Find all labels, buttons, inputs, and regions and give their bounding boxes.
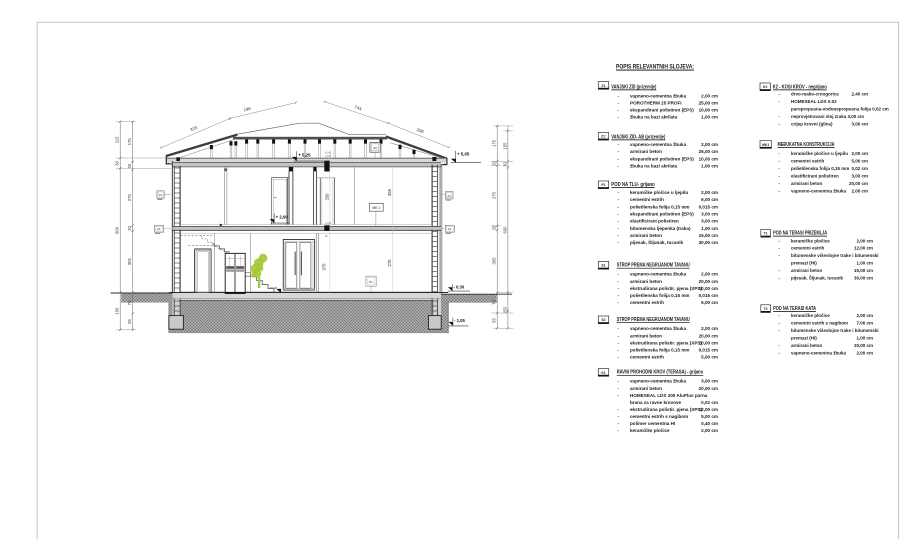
svg-text:20,00 cm: 20,00 cm bbox=[699, 279, 718, 284]
svg-text:+5,41: +5,41 bbox=[325, 151, 332, 155]
svg-text:-: - bbox=[779, 343, 781, 348]
svg-text:cementni estrih: cementni estrih bbox=[791, 158, 825, 163]
svg-text:25,00 cm: 25,00 cm bbox=[699, 100, 718, 105]
svg-text:armirani beton: armirani beton bbox=[630, 279, 662, 284]
svg-text:-: - bbox=[618, 197, 620, 202]
svg-text:MK1: MK1 bbox=[762, 143, 769, 147]
svg-text:-: - bbox=[618, 279, 620, 284]
svg-text:+2,66: +2,66 bbox=[325, 221, 332, 225]
svg-text:polietilenska folija 0,15 mm: polietilenska folija 0,15 mm bbox=[630, 347, 690, 352]
svg-text:20: 20 bbox=[325, 234, 328, 238]
svg-text:STROP PREMA NEGRIJANOM TAVANU: STROP PREMA NEGRIJANOM TAVANU bbox=[617, 317, 690, 323]
svg-text:brana za ravne krovove: brana za ravne krovove bbox=[630, 400, 682, 405]
svg-text:-: - bbox=[618, 115, 620, 120]
svg-text:-: - bbox=[618, 340, 620, 345]
svg-text:3,00 cm: 3,00 cm bbox=[701, 219, 718, 224]
svg-text:-: - bbox=[779, 151, 781, 156]
svg-text:0,015 cm: 0,015 cm bbox=[699, 204, 718, 209]
svg-text:K2: K2 bbox=[763, 85, 767, 89]
svg-text:-: - bbox=[618, 226, 620, 231]
svg-text:keramičke pločice: keramičke pločice bbox=[791, 313, 830, 318]
svg-text:-: - bbox=[779, 99, 781, 104]
svg-text:-: - bbox=[618, 212, 620, 217]
svg-text:2,00 cm: 2,00 cm bbox=[701, 190, 718, 195]
svg-text:pijesak, Šljunak, tucanik: pijesak, Šljunak, tucanik bbox=[791, 273, 844, 280]
svg-text:Z1: Z1 bbox=[448, 194, 452, 198]
svg-text:55: 55 bbox=[492, 318, 497, 323]
svg-text:2,40 cm: 2,40 cm bbox=[851, 92, 868, 97]
svg-text:VANJSKI ZID (prizemlje): VANJSKI ZID (prizemlje) bbox=[611, 84, 656, 90]
svg-text:315: 315 bbox=[189, 125, 198, 133]
svg-text:±0,00: ±0,00 bbox=[270, 286, 278, 290]
svg-text:cementni estrih: cementni estrih bbox=[791, 246, 825, 251]
svg-text:-: - bbox=[618, 272, 620, 277]
svg-text:0,02 cm: 0,02 cm bbox=[851, 166, 868, 171]
svg-text:1,00 cm: 1,00 cm bbox=[701, 226, 718, 231]
svg-text:armirani beton: armirani beton bbox=[791, 268, 823, 273]
svg-text:1,00 cm: 1,00 cm bbox=[856, 261, 873, 266]
svg-text:Z1': Z1' bbox=[601, 135, 606, 139]
svg-text:30: 30 bbox=[114, 160, 119, 165]
svg-text:5,00 cm: 5,00 cm bbox=[851, 158, 868, 163]
svg-text:ekstrudirana polistir. pjena (: ekstrudirana polistir. pjena (XPS) bbox=[630, 340, 702, 345]
svg-text:-: - bbox=[618, 190, 620, 195]
svg-text:vapneno-cementna žbuka: vapneno-cementna žbuka bbox=[791, 188, 847, 193]
svg-text:armirani beton: armirani beton bbox=[791, 343, 823, 348]
svg-text:2,00 cm: 2,00 cm bbox=[851, 151, 868, 156]
svg-text:premazi (HI): premazi (HI) bbox=[791, 261, 817, 266]
svg-text:-: - bbox=[779, 173, 781, 178]
svg-text:-: - bbox=[618, 379, 620, 384]
svg-text:2,00 cm: 2,00 cm bbox=[856, 351, 873, 356]
svg-text:2,00 cm: 2,00 cm bbox=[856, 313, 873, 318]
svg-text:115: 115 bbox=[114, 136, 119, 143]
svg-text:Z1: Z1 bbox=[159, 193, 163, 197]
svg-text:2,00 cm: 2,00 cm bbox=[701, 142, 718, 147]
svg-text:270: 270 bbox=[387, 259, 392, 267]
svg-text:600: 600 bbox=[502, 226, 507, 234]
svg-text:POPIS RELEVANTNIH SLOJEVA:: POPIS RELEVANTNIH SLOJEVA: bbox=[616, 64, 694, 70]
svg-text:15,00 cm: 15,00 cm bbox=[854, 268, 873, 273]
svg-text:-: - bbox=[618, 219, 620, 224]
svg-text:polietilenska folija 0,15 mm: polietilenska folija 0,15 mm bbox=[791, 166, 849, 171]
svg-text:ekstrudirana polistir. pjena (: ekstrudirana polistir. pjena (XPS) bbox=[630, 286, 702, 291]
svg-text:-: - bbox=[779, 253, 781, 258]
svg-text:744: 744 bbox=[354, 104, 363, 111]
svg-text:2,00 cm: 2,00 cm bbox=[856, 238, 873, 243]
svg-text:crijep krovni (glina): crijep krovni (glina) bbox=[791, 122, 833, 127]
svg-text:155: 155 bbox=[502, 142, 507, 150]
svg-text:-: - bbox=[618, 93, 620, 98]
svg-text:keramičke pločice: keramičke pločice bbox=[791, 238, 830, 243]
svg-text:-: - bbox=[779, 321, 781, 326]
svg-text:-: - bbox=[618, 393, 620, 398]
svg-text:+5,21: +5,21 bbox=[325, 154, 332, 158]
svg-text:-: - bbox=[618, 326, 620, 331]
svg-text:-: - bbox=[618, 233, 620, 238]
svg-text:cementni estrih: cementni estrih bbox=[630, 197, 664, 202]
svg-text:0,015 cm: 0,015 cm bbox=[699, 347, 718, 352]
svg-text:30: 30 bbox=[502, 162, 507, 167]
svg-text:S2: S2 bbox=[373, 146, 377, 150]
svg-text:-: - bbox=[618, 163, 620, 168]
svg-text:P1: P1 bbox=[601, 183, 605, 187]
svg-text:VANJSKI ZID- AB (prizemlje): VANJSKI ZID- AB (prizemlje) bbox=[611, 134, 665, 140]
svg-text:-: - bbox=[779, 158, 781, 163]
svg-text:375: 375 bbox=[321, 263, 326, 271]
svg-text:3,00 cm: 3,00 cm bbox=[701, 379, 718, 384]
svg-text:0,015 cm: 0,015 cm bbox=[699, 293, 718, 298]
svg-text:5,00 cm: 5,00 cm bbox=[701, 414, 718, 419]
svg-text:70: 70 bbox=[492, 300, 497, 305]
svg-text:7,00 cm: 7,00 cm bbox=[856, 321, 873, 326]
svg-text:1,00 cm: 1,00 cm bbox=[701, 115, 718, 120]
svg-text:6,00 cm: 6,00 cm bbox=[701, 197, 718, 202]
svg-text:vapneno-cementna žbuka: vapneno-cementna žbuka bbox=[630, 326, 687, 331]
svg-text:armirani beton: armirani beton bbox=[791, 181, 823, 186]
svg-text:polimer cementna HI: polimer cementna HI bbox=[630, 421, 675, 426]
svg-text:vapneno-cementna žbuka: vapneno-cementna žbuka bbox=[630, 142, 687, 147]
svg-text:-: - bbox=[779, 275, 781, 280]
svg-text:600: 600 bbox=[114, 226, 119, 234]
svg-text:20,00 cm: 20,00 cm bbox=[849, 181, 868, 186]
svg-text:-: - bbox=[779, 313, 781, 318]
svg-text:2,00 cm: 2,00 cm bbox=[701, 326, 718, 331]
svg-text:2,00 cm: 2,00 cm bbox=[701, 428, 718, 433]
svg-text:-: - bbox=[779, 328, 781, 333]
svg-text:55: 55 bbox=[127, 319, 132, 324]
svg-text:305: 305 bbox=[492, 257, 497, 265]
svg-text:ekspandirani polistiren (EPS): ekspandirani polistiren (EPS) bbox=[630, 212, 694, 217]
svg-text:P1: P1 bbox=[369, 280, 373, 284]
svg-text:1,00 cm: 1,00 cm bbox=[701, 163, 718, 168]
svg-text:cementni estrih s nagibom: cementni estrih s nagibom bbox=[791, 321, 848, 326]
svg-text:10,00 cm: 10,00 cm bbox=[699, 286, 718, 291]
svg-text:vapneno-cementna žbuka: vapneno-cementna žbuka bbox=[630, 379, 687, 384]
svg-text:žbuka na bazi akrilata: žbuka na bazi akrilata bbox=[630, 115, 678, 120]
svg-text:3,00 cm: 3,00 cm bbox=[851, 122, 868, 127]
svg-text:175: 175 bbox=[127, 138, 132, 146]
svg-text:-: - bbox=[618, 293, 620, 298]
svg-text:-: - bbox=[779, 181, 781, 186]
svg-text:-: - bbox=[618, 240, 620, 245]
svg-text:0,02 cm: 0,02 cm bbox=[701, 400, 718, 405]
svg-text:armirani beton: armirani beton bbox=[630, 333, 662, 338]
svg-text:+ 5,05: + 5,05 bbox=[457, 152, 470, 157]
svg-text:365: 365 bbox=[387, 188, 392, 196]
svg-text:keramičke pločice u ljepilu: keramičke pločice u ljepilu bbox=[791, 151, 848, 156]
svg-text:armirani beton: armirani beton bbox=[630, 386, 662, 391]
svg-text:-: - bbox=[618, 156, 620, 161]
svg-text:cementni estrih s nagibom: cementni estrih s nagibom bbox=[630, 414, 688, 419]
svg-text:150: 150 bbox=[114, 307, 119, 315]
svg-text:RAVNI PROHODNI KROV (TERASA) -: RAVNI PROHODNI KROV (TERASA) - grijano bbox=[617, 370, 704, 376]
svg-text:3,00 cm: 3,00 cm bbox=[851, 173, 868, 178]
svg-text:-: - bbox=[618, 149, 620, 154]
svg-text:bitumenske višeslojne trake i: bitumenske višeslojne trake i bitumenski bbox=[791, 253, 879, 258]
svg-text:Z1: Z1 bbox=[602, 84, 606, 88]
svg-text:žbuka na bazi akrilata: žbuka na bazi akrilata bbox=[630, 163, 678, 168]
svg-text:12,00 cm: 12,00 cm bbox=[699, 407, 718, 412]
svg-text:275: 275 bbox=[492, 191, 497, 199]
svg-text:2,00 cm: 2,00 cm bbox=[701, 272, 718, 277]
svg-text:-: - bbox=[779, 122, 781, 127]
svg-text:0,40 cm: 0,40 cm bbox=[701, 421, 718, 426]
svg-text:cementni estrih: cementni estrih bbox=[630, 300, 664, 305]
svg-text:-: - bbox=[618, 286, 620, 291]
svg-text:T2: T2 bbox=[764, 307, 768, 311]
svg-text:-: - bbox=[618, 414, 620, 419]
svg-text:30,00 cm: 30,00 cm bbox=[854, 275, 873, 280]
svg-text:296: 296 bbox=[416, 127, 425, 135]
svg-text:ekspandirani polistiren (EPS): ekspandirani polistiren (EPS) bbox=[630, 156, 694, 161]
svg-text:armirani beton: armirani beton bbox=[630, 233, 662, 238]
svg-text:bitumenska ljepenka (traka): bitumenska ljepenka (traka) bbox=[630, 226, 691, 231]
svg-text:12,00 cm: 12,00 cm bbox=[854, 246, 873, 251]
svg-text:-: - bbox=[618, 407, 620, 412]
svg-text:-: - bbox=[779, 351, 781, 356]
svg-text:30,00 cm: 30,00 cm bbox=[699, 240, 718, 245]
svg-text:-: - bbox=[618, 100, 620, 105]
svg-text:neprovjetravani sloj zraka 3,: neprovjetravani sloj zraka 3,00 cm bbox=[791, 114, 864, 119]
svg-text:-: - bbox=[779, 246, 781, 251]
svg-text:-: - bbox=[779, 166, 781, 171]
svg-text:POD NA TERASI PRIZEMLJA: POD NA TERASI PRIZEMLJA bbox=[773, 231, 827, 237]
svg-text:S1: S1 bbox=[601, 264, 605, 268]
svg-text:polietilenska folija 0,15 mm: polietilenska folija 0,15 mm bbox=[630, 204, 690, 209]
svg-text:drvo-mako-crnogorica: drvo-mako-crnogorica bbox=[791, 92, 839, 97]
svg-text:-: - bbox=[779, 92, 781, 97]
svg-text:Z1': Z1' bbox=[448, 227, 452, 231]
svg-text:-: - bbox=[618, 300, 620, 305]
svg-text:2,00 cm: 2,00 cm bbox=[851, 188, 868, 193]
svg-text:-: - bbox=[779, 268, 781, 273]
svg-text:10,00 cm: 10,00 cm bbox=[699, 108, 718, 113]
svg-text:cementni estrih: cementni estrih bbox=[630, 355, 664, 360]
svg-text:keramičke pločice: keramičke pločice bbox=[630, 428, 670, 433]
svg-text:ekspandirani polistiren (EPS): ekspandirani polistiren (EPS) bbox=[630, 108, 694, 113]
svg-text:-: - bbox=[779, 188, 781, 193]
svg-text:+ 2,90: + 2,90 bbox=[276, 214, 289, 219]
svg-text:20: 20 bbox=[127, 225, 132, 230]
svg-text:keramičke pločice u ljepilu: keramičke pločice u ljepilu bbox=[630, 190, 688, 195]
svg-text:10,00 cm: 10,00 cm bbox=[699, 156, 718, 161]
svg-text:POD NA TERASI KATA: POD NA TERASI KATA bbox=[773, 306, 816, 312]
svg-text:25,00 cm: 25,00 cm bbox=[699, 149, 718, 154]
svg-text:70: 70 bbox=[127, 300, 132, 305]
svg-text:-: - bbox=[618, 204, 620, 209]
svg-text:1,00 cm: 1,00 cm bbox=[856, 336, 873, 341]
svg-text:20,00 cm: 20,00 cm bbox=[699, 333, 718, 338]
svg-text:POD NA TLU- grijano: POD NA TLU- grijano bbox=[611, 182, 655, 188]
svg-text:bitumenske višeslojne trake i: bitumenske višeslojne trake i bitumenski bbox=[791, 328, 879, 333]
svg-text:-: - bbox=[618, 142, 620, 147]
svg-text:ekstrudirana polistir. pjena (: ekstrudirana polistir. pjena (XPS) bbox=[630, 407, 702, 412]
svg-text:20,00 cm: 20,00 cm bbox=[699, 386, 718, 391]
svg-text:-: - bbox=[618, 355, 620, 360]
svg-text:Z1': Z1' bbox=[157, 227, 161, 231]
svg-text:196: 196 bbox=[243, 106, 252, 113]
svg-text:+ 5,25: + 5,25 bbox=[298, 152, 311, 157]
svg-text:3,00 cm: 3,00 cm bbox=[701, 212, 718, 217]
svg-text:- 0,30: - 0,30 bbox=[454, 285, 465, 290]
svg-text:vapneno-cementna žbuka: vapneno-cementna žbuka bbox=[630, 93, 687, 98]
svg-text:T1: T1 bbox=[764, 232, 768, 236]
svg-text:250: 250 bbox=[324, 193, 329, 201]
svg-text:premazi (HI): premazi (HI) bbox=[791, 336, 817, 341]
svg-text:- 1,05: - 1,05 bbox=[454, 318, 465, 323]
svg-text:S2: S2 bbox=[601, 318, 605, 322]
svg-text:10,00 cm: 10,00 cm bbox=[699, 340, 718, 345]
svg-text:K2 - KOSI KROV - negrijano: K2 - KOSI KROV - negrijano bbox=[773, 84, 827, 90]
svg-text:-: - bbox=[779, 238, 781, 243]
svg-text:5,00 cm: 5,00 cm bbox=[701, 355, 718, 360]
svg-text:305: 305 bbox=[127, 258, 132, 266]
svg-text:POROTHERM 25 PROFI: POROTHERM 25 PROFI bbox=[630, 100, 682, 105]
svg-text:elastificirani polistiren: elastificirani polistiren bbox=[791, 173, 839, 178]
svg-text:-: - bbox=[618, 108, 620, 113]
svg-text:pijesak, Šljunak, tucanik: pijesak, Šljunak, tucanik bbox=[630, 238, 684, 245]
svg-text:MK 1: MK 1 bbox=[372, 206, 380, 210]
svg-text:paropropusna-vodonepropusna fo: paropropusna-vodonepropusna folija 0,02 … bbox=[791, 107, 889, 112]
svg-text:5,00 cm: 5,00 cm bbox=[701, 300, 718, 305]
svg-text:-: - bbox=[618, 347, 620, 352]
svg-text:175: 175 bbox=[492, 139, 497, 147]
svg-text:vapneno-cementna žbuka: vapneno-cementna žbuka bbox=[791, 351, 847, 356]
svg-text:15,00 cm: 15,00 cm bbox=[699, 233, 718, 238]
svg-text:20,00 cm: 20,00 cm bbox=[854, 343, 873, 348]
svg-text:-: - bbox=[618, 386, 620, 391]
svg-text:2,00 cm: 2,00 cm bbox=[701, 93, 718, 98]
svg-text:HOMESEAL LDS 0.02: HOMESEAL LDS 0.02 bbox=[791, 99, 837, 104]
svg-text:STROP PREMA NEGRIJANOM TAVANU: STROP PREMA NEGRIJANOM TAVANU bbox=[617, 263, 690, 269]
svg-text:K1: K1 bbox=[601, 371, 605, 375]
svg-text:20: 20 bbox=[127, 163, 132, 168]
svg-text:elastificirani polistiren: elastificirani polistiren bbox=[630, 219, 679, 224]
svg-text:armirani beton: armirani beton bbox=[630, 149, 662, 154]
svg-text:-: - bbox=[618, 333, 620, 338]
svg-text:-: - bbox=[779, 114, 781, 119]
svg-text:polietilenska folija 0,15 mm: polietilenska folija 0,15 mm bbox=[630, 293, 690, 298]
svg-text:-: - bbox=[618, 421, 620, 426]
svg-text:275: 275 bbox=[127, 194, 132, 202]
svg-text:HOMESEAL LDS 200 AluPlus parna: HOMESEAL LDS 200 AluPlus parna bbox=[630, 393, 708, 398]
svg-text:-: - bbox=[618, 428, 620, 433]
svg-text:vapneno-cementna žbuka: vapneno-cementna žbuka bbox=[630, 272, 687, 277]
svg-text:MEĐUKATNA KONSTRUKCIJA: MEĐUKATNA KONSTRUKCIJA bbox=[778, 142, 835, 148]
